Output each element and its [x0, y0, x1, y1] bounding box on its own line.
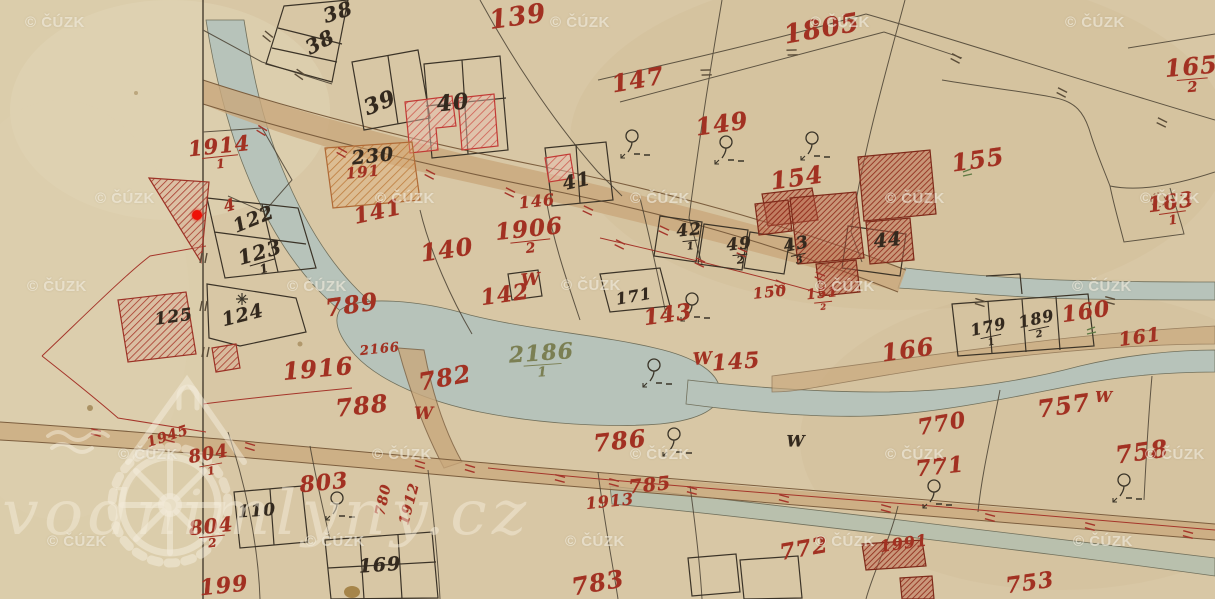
map-viewport[interactable]: 1391805165214714915515416311914119114114… [0, 0, 1215, 599]
map-canvas [0, 0, 1215, 599]
red-dot-marker [192, 210, 202, 220]
